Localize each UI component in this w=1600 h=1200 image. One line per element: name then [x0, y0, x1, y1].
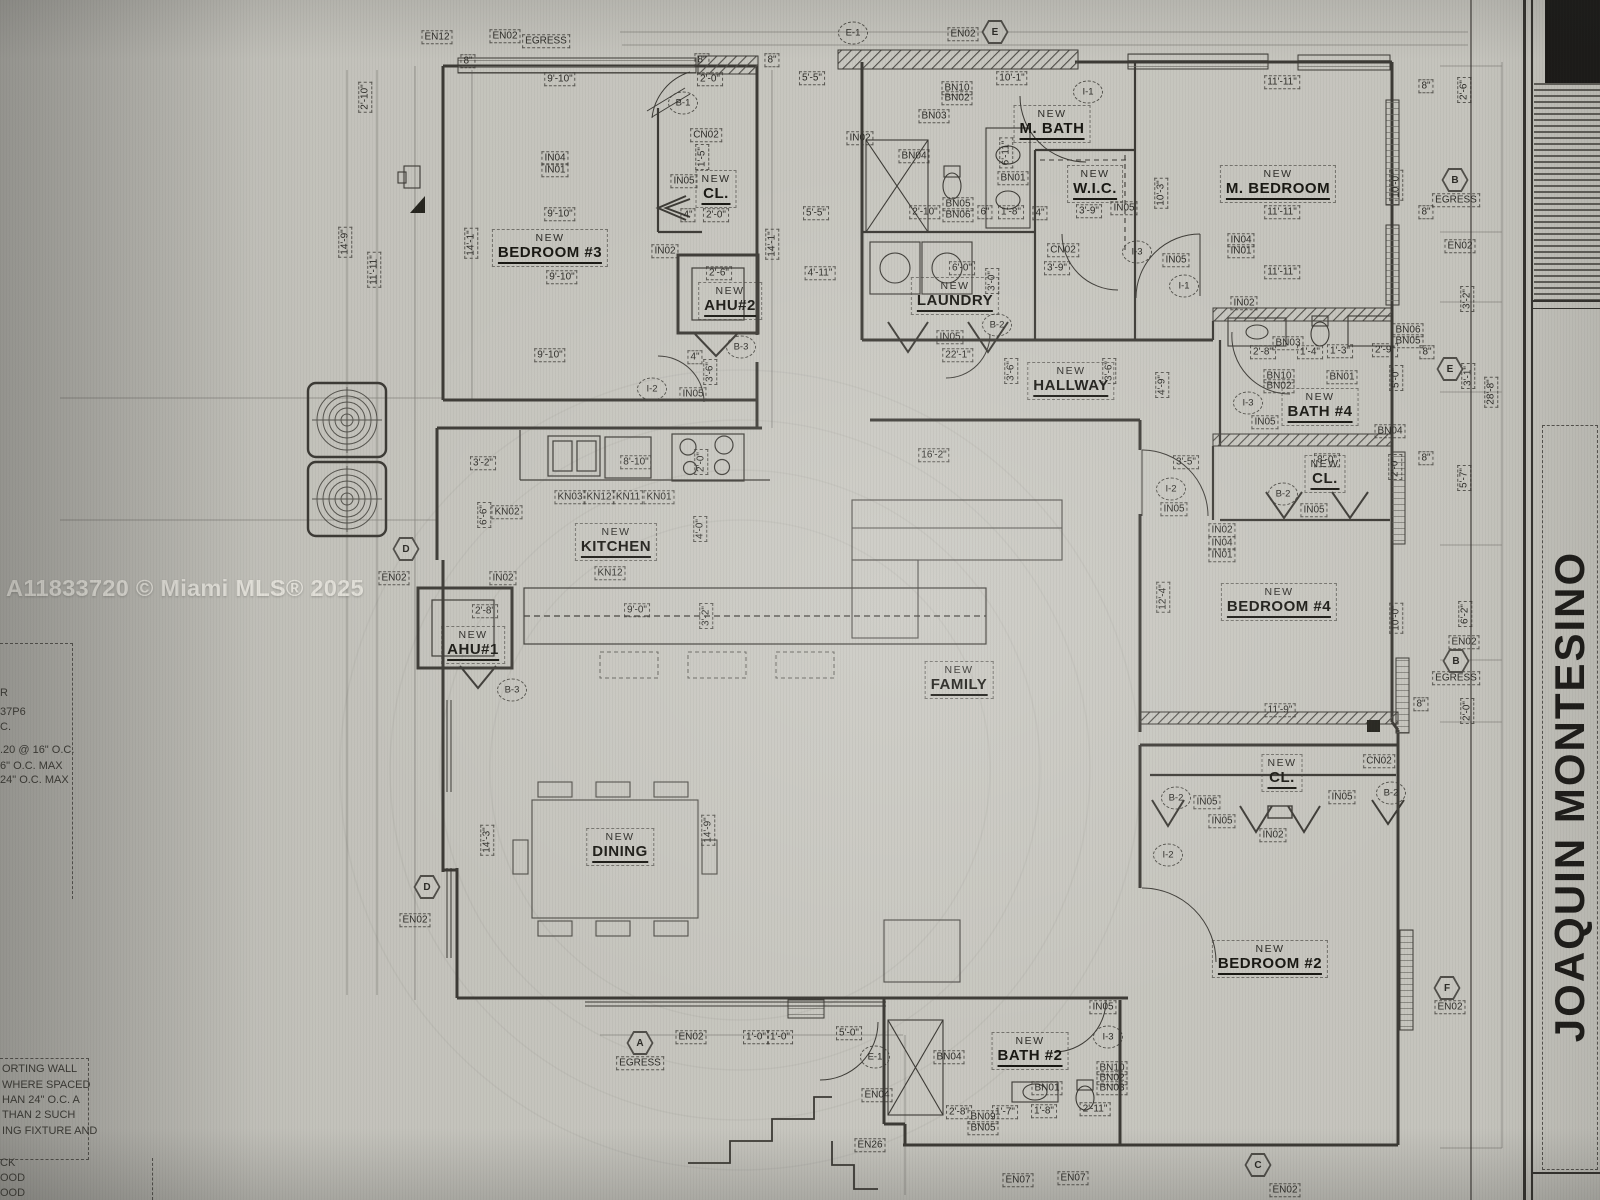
dim-label: IN02	[489, 571, 516, 585]
dim-label: 1'-8"	[998, 205, 1024, 219]
room-label: NEWBATH #4	[1282, 388, 1359, 426]
dim-label: 3'-2"	[470, 456, 496, 470]
dim-label: 2'-6"	[706, 266, 732, 280]
room-label-prefix: NEW	[1020, 108, 1085, 120]
dim-label: 3'-6"	[1004, 358, 1018, 384]
room-label-name: CL.	[1311, 470, 1340, 490]
dim-label: IN05	[679, 387, 706, 401]
dim-label: IN01	[1227, 244, 1254, 258]
dim-label: EN02	[489, 29, 520, 43]
dim-label: 3'-5"	[1173, 455, 1199, 469]
dim-label: 2'-8"	[472, 604, 498, 618]
dim-label: 14'-3"	[480, 824, 494, 855]
dim-label: 9'-0"	[624, 603, 650, 617]
room-label-prefix: NEW	[931, 664, 988, 676]
room-label: NEWLAUNDRY	[911, 277, 999, 315]
dim-label: 10'-0"	[1389, 169, 1403, 200]
dim-label: BN03	[1096, 1081, 1127, 1095]
room-label-name: KITCHEN	[581, 538, 651, 558]
dim-label: IN05	[1251, 415, 1278, 429]
dim-label: 4"	[1032, 206, 1047, 220]
dim-label: 1'-4"	[1297, 345, 1323, 359]
dim-label: 5'-0"	[836, 1026, 862, 1040]
dim-label: EN02	[1434, 1000, 1465, 1014]
dim-label: 6'-11"	[999, 138, 1013, 169]
dim-label: 3'-6"	[703, 359, 717, 385]
room-label-prefix: NEW	[917, 280, 993, 292]
room-label: NEWBEDROOM #3	[492, 229, 608, 267]
grid-marker: E	[982, 20, 1009, 44]
note-line: OOD	[0, 1172, 25, 1184]
dim-label: 4"	[680, 208, 695, 222]
dim-label: 1'-7"	[992, 1105, 1018, 1119]
dim-label: BN05	[967, 1121, 998, 1135]
dim-label: 5'-0"	[1389, 365, 1403, 391]
keynote-circle: I-1	[1073, 81, 1103, 104]
dim-label: KN12	[583, 490, 614, 504]
room-label-name: BEDROOM #2	[1218, 955, 1322, 975]
room-label: NEWAHU#2	[698, 282, 762, 320]
dim-label: BN01	[997, 171, 1028, 185]
dim-label: KN12	[594, 566, 625, 580]
dim-label: 1'-3"	[1327, 344, 1353, 358]
keynote-circle: I-2	[1156, 478, 1186, 501]
dim-label: BN04	[1374, 424, 1405, 438]
dim-label: IN05	[1160, 502, 1187, 516]
keynote-circle: B-1	[668, 92, 698, 115]
floorplan-photo: EN12EN02EGRESSEN028"8"8"9'-10"2'-0"5'-5"…	[0, 0, 1600, 1200]
note-line: HAN 24" O.C. A	[2, 1094, 80, 1106]
dim-label: IN05	[1110, 201, 1137, 215]
dim-label: BN01	[1031, 1081, 1062, 1095]
dim-label: BN01	[1326, 370, 1357, 384]
dim-label: KN01	[643, 490, 674, 504]
dim-label: 10'-1"	[996, 71, 1027, 85]
dim-label: 6'-6"	[477, 502, 491, 528]
dim-label: IN05	[1193, 795, 1220, 809]
dim-label: 5'-5"	[799, 71, 825, 85]
room-label-name: M. BATH	[1020, 120, 1085, 140]
dim-label: 1'-5"	[695, 144, 709, 170]
keynote-circle: B-2	[1268, 483, 1298, 506]
dim-label: 11'-9"	[1265, 703, 1296, 717]
room-label: NEWKITCHEN	[575, 523, 657, 561]
dim-label: EN07	[1057, 1171, 1088, 1185]
note-line: ORTING WALL	[2, 1063, 77, 1075]
mls-watermark: A11833720 © Miami MLS® 2025	[6, 575, 364, 602]
room-label-name: LAUNDRY	[917, 292, 993, 312]
room-label: NEWDINING	[586, 828, 654, 866]
dim-label: 2'-6"	[1457, 77, 1471, 103]
room-label-prefix: NEW	[1311, 458, 1340, 470]
dim-label: 9'-10"	[544, 207, 575, 221]
dim-label: 10'-3"	[1154, 177, 1168, 208]
titleblock-divider	[1532, 300, 1600, 302]
room-label: NEWAHU#1	[441, 626, 505, 664]
dim-label: BN04	[898, 149, 929, 163]
dim-label: 3'-9"	[1076, 204, 1102, 218]
dim-label: EN02	[1269, 1183, 1300, 1197]
dim-label: IN02	[1208, 523, 1235, 537]
dim-label: 1'-0"	[743, 1030, 769, 1044]
dim-label: 2'-0"	[1388, 454, 1402, 480]
keynote-circle: I-1	[1169, 275, 1199, 298]
dim-label: KN02	[491, 505, 522, 519]
dim-label: 11'-11"	[1264, 75, 1300, 89]
dim-label: IN05	[670, 174, 697, 188]
dim-label: 9'-10"	[544, 72, 575, 86]
dim-label: 6'-0"	[949, 261, 975, 275]
room-label-name: AHU#1	[447, 641, 499, 661]
room-label-prefix: NEW	[1033, 365, 1108, 377]
dim-label: 8'-10"	[620, 455, 651, 469]
dim-label: 14'-9"	[701, 814, 715, 845]
keynote-circle: B-2	[1161, 787, 1191, 810]
room-label-name: AHU#2	[704, 297, 756, 317]
dim-label: 2'-10"	[909, 205, 940, 219]
room-label-prefix: NEW	[1227, 586, 1331, 598]
dim-label: 2'-0"	[694, 449, 708, 475]
room-label: NEWM. BATH	[1014, 105, 1091, 143]
dim-label: 2'-8"	[1250, 345, 1276, 359]
dim-label: 2'-9"	[1372, 343, 1398, 357]
dim-label: 8"	[1413, 697, 1428, 711]
grid-marker: F	[1434, 976, 1461, 1000]
room-label: NEWCL.	[1305, 455, 1346, 493]
titleblock-border-outer	[1523, 0, 1526, 1200]
titleblock-dark-corner	[1545, 0, 1600, 83]
left-note-divider	[152, 1158, 154, 1200]
room-label-name: W.I.C.	[1073, 180, 1117, 200]
dim-label: 14'-9"	[338, 226, 352, 257]
room-label-prefix: NEW	[581, 526, 651, 538]
dim-label: IN05	[1208, 814, 1235, 828]
dim-label: 4'-11"	[805, 266, 836, 280]
note-line: 24" O.C. MAX	[0, 774, 69, 786]
room-label-prefix: NEW	[1226, 168, 1330, 180]
dim-label: 28'-8"	[1484, 376, 1498, 407]
dim-label: IN02	[1230, 296, 1257, 310]
titleblock-divider	[1532, 1172, 1600, 1174]
dim-label: 14'-1"	[765, 228, 779, 259]
keynote-circle: B-3	[726, 336, 756, 359]
dim-label: IN02	[1259, 828, 1286, 842]
dim-label: BN02	[941, 91, 972, 105]
room-label: NEWM. BEDROOM	[1220, 165, 1336, 203]
room-label: NEWBATH #2	[992, 1032, 1069, 1070]
room-label-name: CL.	[702, 185, 731, 205]
titleblock-paper-edge	[1470, 0, 1472, 1200]
grid-marker: E	[1437, 357, 1464, 381]
dim-label: IN05	[936, 330, 963, 344]
dim-label: 11'-11"	[1264, 265, 1300, 279]
dim-label: 2'-10"	[358, 81, 372, 112]
dim-label: CN02	[1047, 243, 1079, 257]
dim-label: 10'-0"	[1389, 602, 1403, 633]
dim-label: 11'-11"	[1264, 205, 1300, 219]
room-label-name: BATH #2	[998, 1047, 1063, 1067]
room-label: NEWW.I.C.	[1067, 165, 1123, 203]
dim-label: EN02	[378, 571, 409, 585]
dim-label: 8"	[764, 53, 779, 67]
dim-label: EN02	[947, 27, 978, 41]
room-label-prefix: NEW	[1288, 391, 1353, 403]
dim-label: 4'-0"	[693, 516, 707, 542]
dim-label: 8"	[1418, 79, 1433, 93]
dim-label: IN05	[1300, 503, 1327, 517]
dim-label: 3'-9"	[1044, 261, 1070, 275]
keynote-circle: B-2	[982, 314, 1012, 337]
room-label: NEWFAMILY	[925, 661, 994, 699]
dim-label: IN05	[1328, 790, 1355, 804]
note-line: ING FIXTURE AND	[2, 1125, 97, 1137]
room-label-name: BEDROOM #4	[1227, 598, 1331, 618]
note-line: 6" O.C. MAX	[0, 760, 63, 772]
dim-label: 11'-11"	[367, 252, 381, 288]
dim-label: BN06	[942, 208, 973, 222]
room-label-prefix: NEW	[1073, 168, 1117, 180]
room-label-name: DINING	[592, 843, 648, 863]
room-label-name: BEDROOM #3	[498, 244, 602, 264]
architect-name: JOAQUIN MONTESINO	[1546, 425, 1596, 1168]
dim-label: EN26	[854, 1138, 885, 1152]
dim-label: 5'-5"	[803, 206, 829, 220]
note-line: R	[0, 687, 8, 699]
room-label: NEWBEDROOM #2	[1212, 940, 1328, 978]
dim-label: 22'-1"	[942, 348, 973, 362]
dim-label: 3'-2"	[699, 603, 713, 629]
dim-label: 2'-0"	[697, 72, 723, 86]
room-label-prefix: NEW	[447, 629, 499, 641]
dim-label: EN04	[861, 1088, 892, 1102]
room-label-prefix: NEW	[1268, 757, 1297, 769]
note-line: 37P6	[0, 706, 26, 718]
dim-label: KN03	[554, 490, 585, 504]
dim-label: EGRESS	[1432, 671, 1480, 685]
dim-label: 2'-11"	[1080, 1102, 1111, 1116]
keynote-circle: I-3	[1233, 392, 1263, 415]
dim-label: IN05	[1089, 1000, 1116, 1014]
dim-label: 8"	[1418, 205, 1433, 219]
note-line: C.	[0, 721, 11, 733]
room-label-name: FAMILY	[931, 676, 988, 696]
room-label-prefix: NEW	[998, 1035, 1063, 1047]
dim-label: 6"	[977, 205, 992, 219]
dim-label: EN07	[1002, 1173, 1033, 1187]
dim-label: 8"	[1419, 345, 1434, 359]
room-label-name: CL.	[1268, 769, 1297, 789]
dim-label: 2'-0"	[703, 208, 729, 222]
dim-label: 8"	[460, 54, 475, 68]
titleblock-border-inner	[1531, 0, 1533, 1200]
dim-label: 4"	[687, 350, 702, 364]
room-label-prefix: NEW	[498, 232, 602, 244]
note-line: .20 @ 16" O.C.	[0, 744, 74, 756]
keynote-circle: E-1	[860, 1046, 890, 1069]
room-label-prefix: NEW	[702, 173, 731, 185]
dim-label: IN01	[1208, 548, 1235, 562]
room-label-prefix: NEW	[1218, 943, 1322, 955]
dim-label: 1'-0"	[767, 1030, 793, 1044]
note-line: WHERE SPACED	[2, 1079, 90, 1091]
grid-marker: C	[1245, 1153, 1272, 1177]
grid-marker: B	[1443, 649, 1470, 673]
room-label-prefix: NEW	[704, 285, 756, 297]
room-label: NEWCL.	[696, 170, 737, 208]
dim-label: IN02	[651, 244, 678, 258]
room-label: NEWBEDROOM #4	[1221, 583, 1337, 621]
note-line: OOD	[0, 1187, 25, 1199]
dim-label: BN03	[918, 109, 949, 123]
room-label-name: HALLWAY	[1033, 377, 1108, 397]
dim-label: CN02	[1363, 754, 1395, 768]
dim-label: IN01	[541, 163, 568, 177]
dim-label: 12'-4"	[1156, 581, 1170, 612]
dim-label: CN02	[690, 128, 722, 142]
grid-marker: D	[414, 875, 441, 899]
grid-marker: D	[393, 537, 420, 561]
dim-label: 9'-10"	[534, 348, 565, 362]
keynote-circle: B-3	[497, 679, 527, 702]
titleblock-hatch	[1534, 83, 1600, 300]
dim-label: 9'-10"	[546, 270, 577, 284]
note-line: CK	[0, 1157, 15, 1169]
dim-label: EN02	[675, 1030, 706, 1044]
keynote-circle: I-3	[1093, 1026, 1123, 1049]
room-label-name: BATH #4	[1288, 403, 1353, 423]
grid-marker: B	[1442, 168, 1469, 192]
dim-label: 1'-8"	[1031, 1104, 1057, 1118]
dim-label: EN02	[1448, 635, 1479, 649]
keynote-circle: B-2	[1376, 782, 1406, 805]
room-label: NEWHALLWAY	[1027, 362, 1114, 400]
keynote-circle: I-2	[1153, 844, 1183, 867]
dim-label: BN04	[933, 1050, 964, 1064]
room-label-prefix: NEW	[592, 831, 648, 843]
dim-label: EGRESS	[616, 1056, 664, 1070]
dim-label: 4'-9"	[1155, 372, 1169, 398]
dim-label: 5'-7"	[1457, 465, 1471, 491]
dim-label: 14'-1"	[464, 227, 478, 258]
room-label-name: M. BEDROOM	[1226, 180, 1330, 200]
dim-label: KN11	[613, 490, 643, 504]
dim-label: 8"	[694, 53, 709, 67]
dim-label: EN12	[421, 30, 452, 44]
dim-label: 16'-2"	[918, 448, 949, 462]
dim-label: 8"	[1418, 451, 1433, 465]
room-label: NEWCL.	[1262, 754, 1303, 792]
keynote-circle: I-2	[637, 378, 667, 401]
dim-label: IN02	[846, 131, 873, 145]
grid-marker: A	[627, 1031, 654, 1055]
dim-label: IN05	[1162, 253, 1189, 267]
keynote-circle: I-3	[1122, 241, 1152, 264]
dim-label: EGRESS	[1432, 193, 1480, 207]
dim-label: EGRESS	[522, 34, 570, 48]
dim-label: EN02	[399, 913, 430, 927]
note-line: THAN 2 SUCH	[2, 1109, 75, 1121]
keynote-circle: E-1	[838, 22, 868, 45]
titleblock-divider	[1532, 308, 1600, 309]
